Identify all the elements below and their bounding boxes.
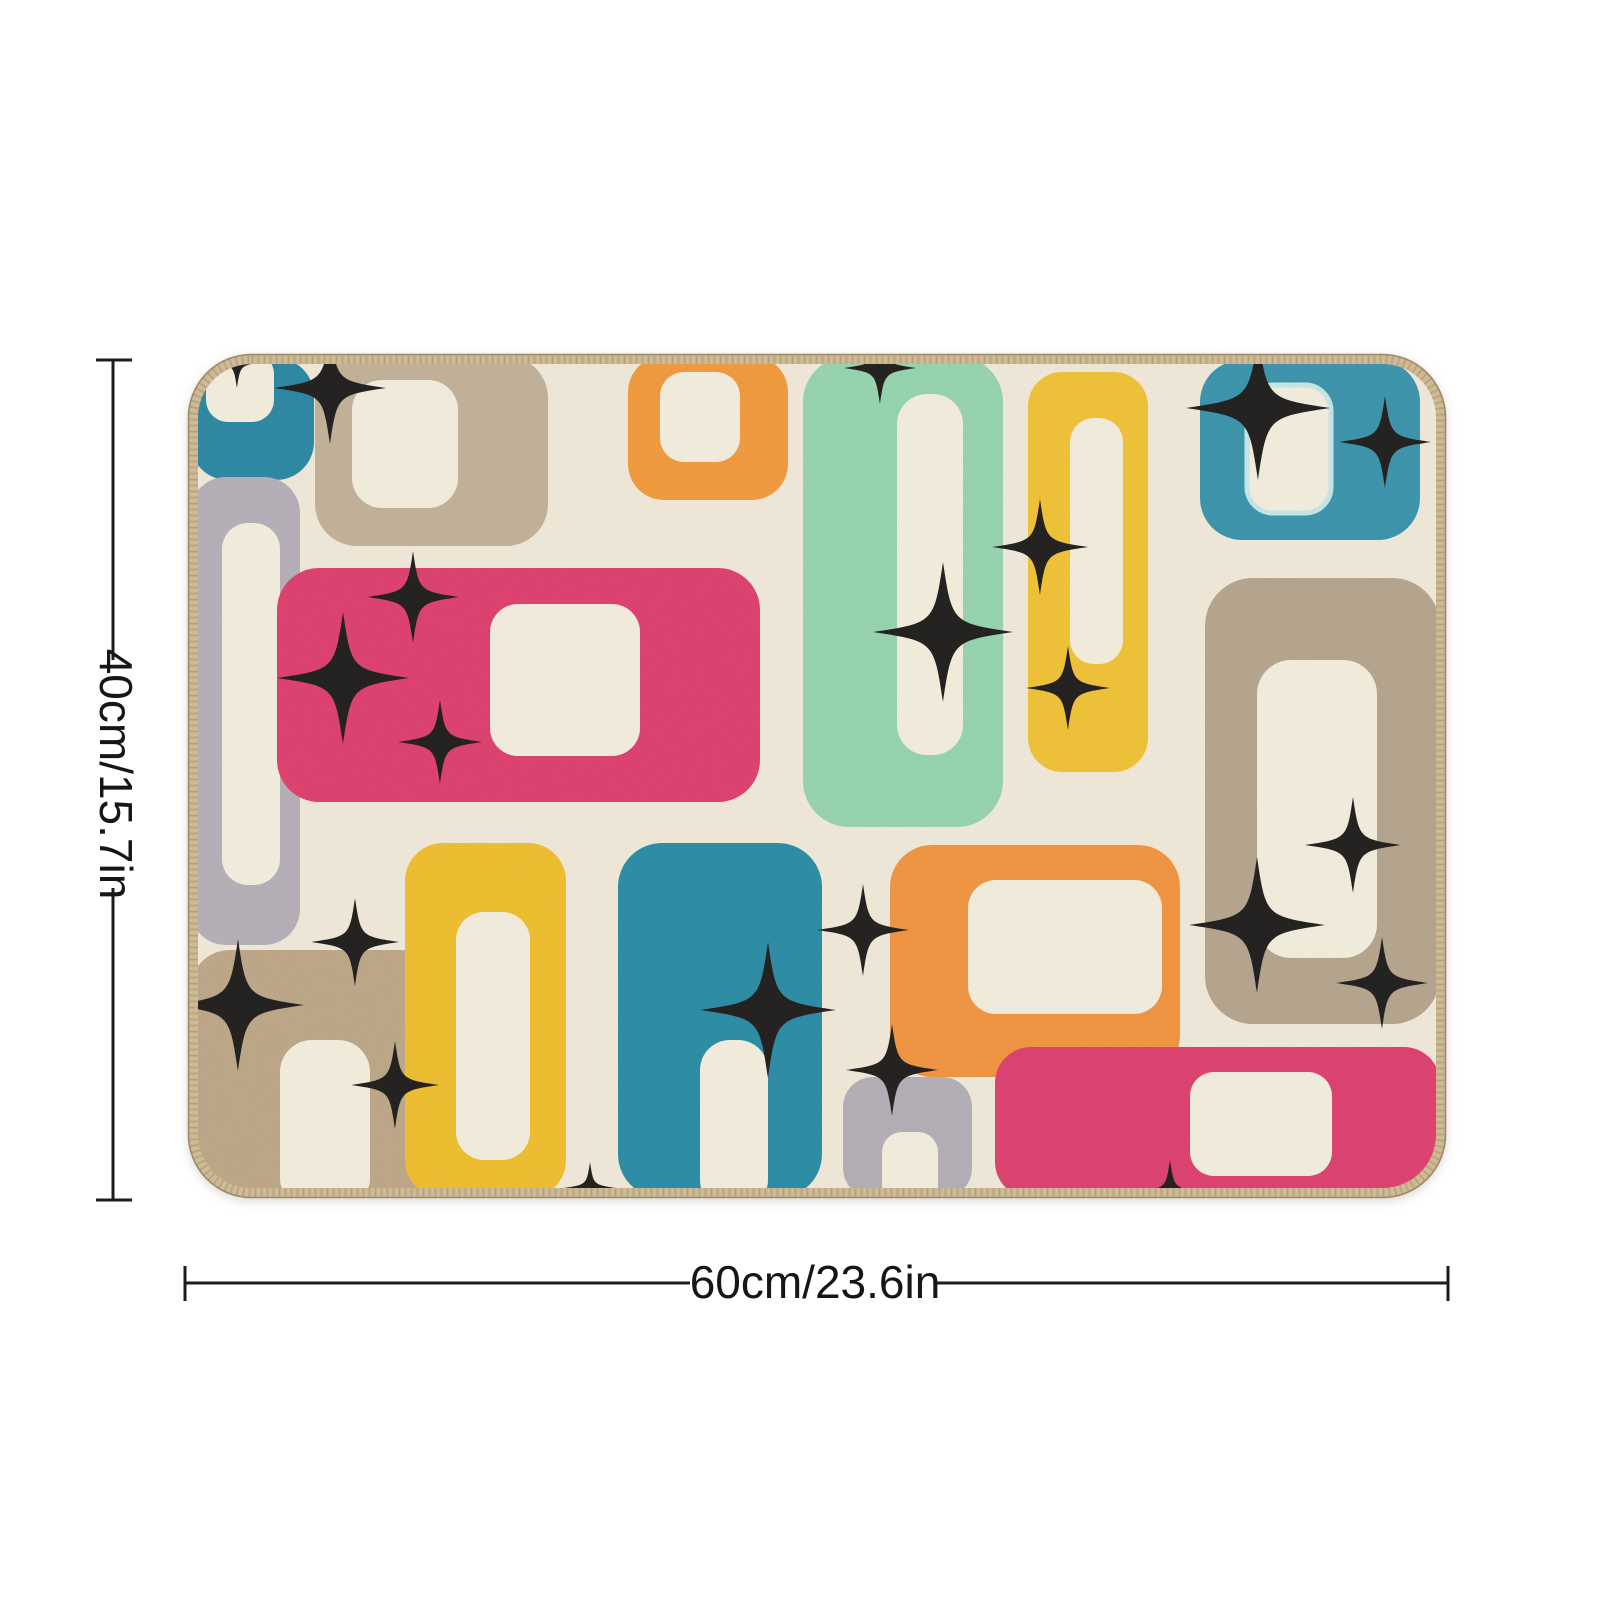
product-photo: 40cm/15.7in 60cm/23.6in xyxy=(0,0,1600,1600)
width-dimension-label: 60cm/23.6in xyxy=(690,1256,941,1308)
height-dimension-label: 40cm/15.7in xyxy=(90,649,142,900)
dimension-annotations: 40cm/15.7in 60cm/23.6in xyxy=(0,0,1600,1600)
dimension-lines xyxy=(96,360,1448,1301)
